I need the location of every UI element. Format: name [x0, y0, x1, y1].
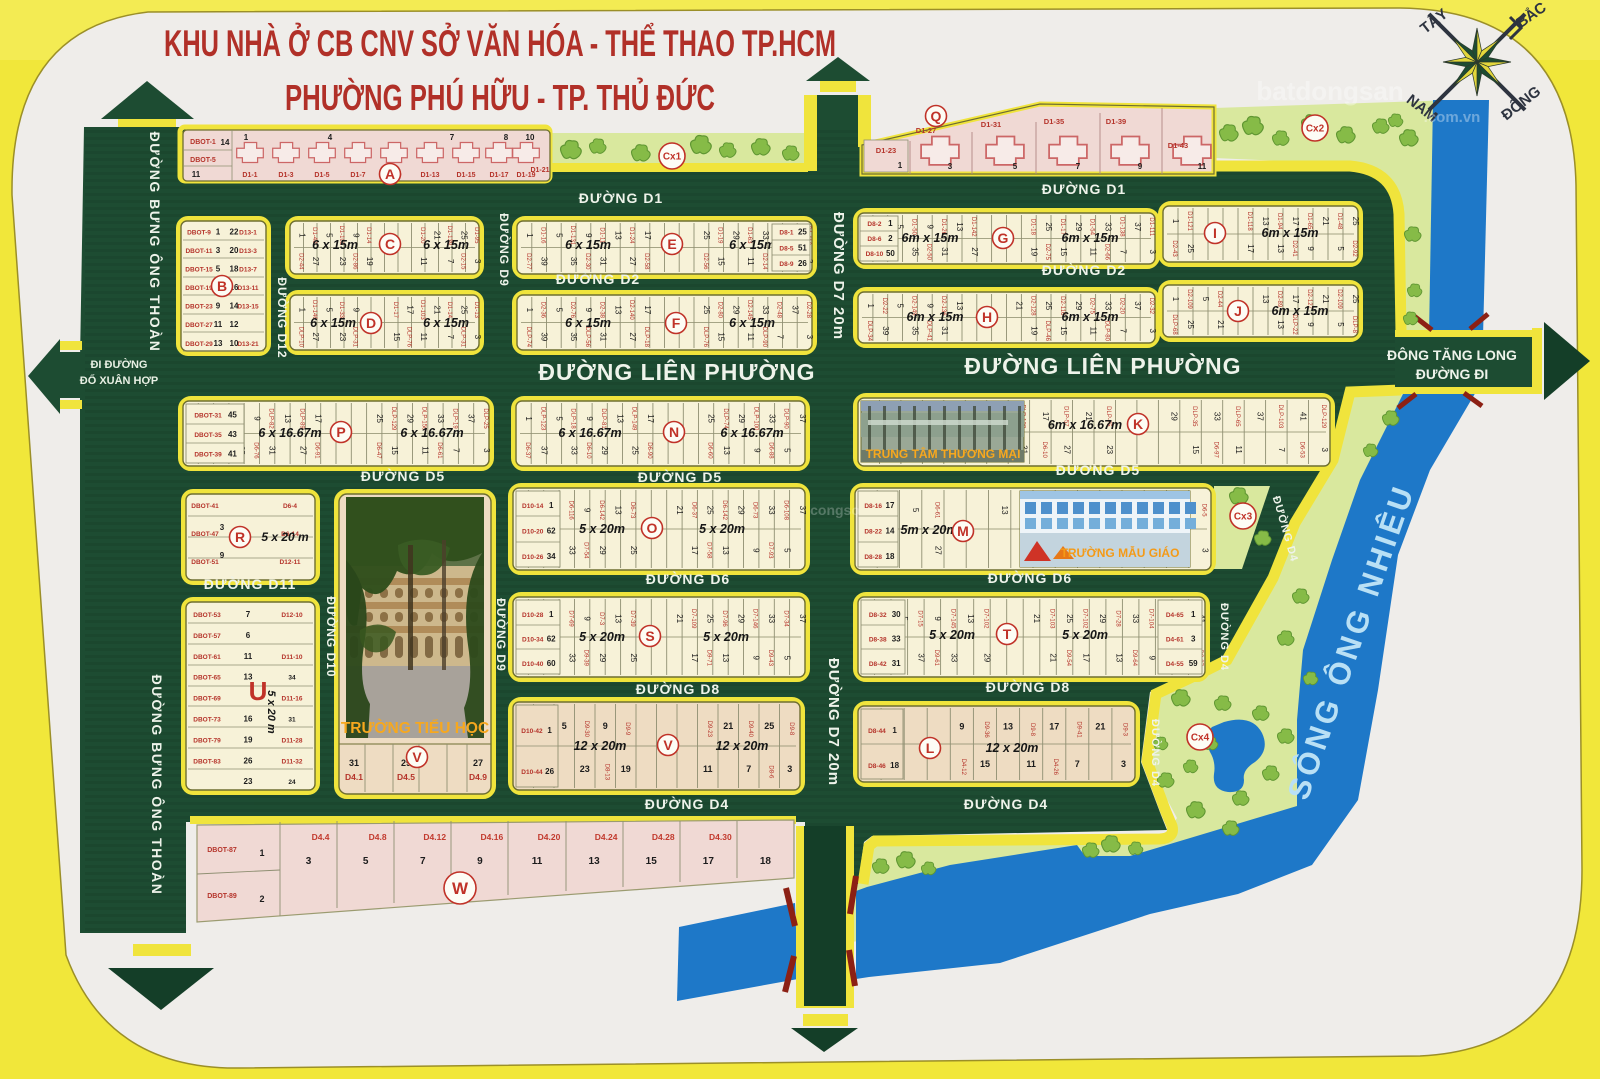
svg-text:D2-140: D2-140 — [628, 300, 634, 320]
svg-text:D8-2: D8-2 — [867, 221, 881, 228]
svg-text:62: 62 — [547, 527, 556, 536]
svg-text:ĐƯỜNG D4: ĐƯỜNG D4 — [1149, 719, 1162, 787]
svg-text:D4.8: D4.8 — [369, 832, 387, 842]
svg-text:D6-90: D6-90 — [646, 442, 652, 459]
svg-text:9: 9 — [220, 551, 225, 560]
svg-text:4: 4 — [328, 133, 333, 142]
svg-text:6 x 16.67m: 6 x 16.67m — [720, 426, 783, 440]
svg-text:D6-47: D6-47 — [375, 442, 381, 459]
svg-text:D11-10: D11-10 — [282, 654, 303, 661]
svg-text:35: 35 — [910, 247, 919, 256]
svg-text:D1-21: D1-21 — [530, 167, 549, 174]
svg-text:D1-111: D1-111 — [1148, 217, 1154, 236]
svg-text:2: 2 — [888, 234, 893, 243]
svg-text:5 x 20m: 5 x 20m — [699, 522, 745, 536]
svg-text:23: 23 — [244, 777, 253, 786]
svg-text:5: 5 — [783, 448, 792, 453]
svg-text:D9-8: D9-8 — [788, 722, 794, 736]
svg-text:31: 31 — [349, 758, 359, 768]
svg-text:3: 3 — [787, 764, 792, 774]
svg-text:D6-73: D6-73 — [752, 502, 758, 519]
svg-text:ĐƯỜNG ĐI: ĐƯỜNG ĐI — [1416, 365, 1489, 382]
svg-text:6m x 15m: 6m x 15m — [1062, 231, 1119, 245]
svg-text:D10-28: D10-28 — [522, 612, 544, 619]
svg-text:37: 37 — [1133, 301, 1142, 310]
svg-text:D10-44: D10-44 — [521, 769, 543, 776]
svg-text:TRUNG TÂM THƯƠNG MẠI: TRUNG TÂM THƯƠNG MẠI — [866, 446, 1021, 461]
svg-text:5: 5 — [554, 308, 563, 313]
svg-text:ĐƯỜNG D7 20m: ĐƯỜNG D7 20m — [825, 658, 843, 786]
svg-text:ĐƯỜNG D5: ĐƯỜNG D5 — [1056, 461, 1140, 478]
svg-text:U: U — [249, 676, 268, 706]
svg-text:21: 21 — [675, 614, 684, 623]
svg-text:6 x 16.67m: 6 x 16.67m — [400, 426, 463, 440]
svg-text:23: 23 — [1105, 445, 1114, 454]
svg-text:13: 13 — [966, 614, 975, 623]
svg-text:7: 7 — [446, 335, 455, 340]
svg-text:13: 13 — [613, 231, 622, 240]
svg-text:27: 27 — [298, 446, 307, 455]
svg-text:ĐƯỜNG D2: ĐƯỜNG D2 — [1042, 261, 1126, 278]
svg-text:15: 15 — [390, 446, 399, 455]
svg-text:1: 1 — [525, 308, 534, 313]
svg-text:D11-28: D11-28 — [282, 737, 303, 744]
svg-text:D4.24: D4.24 — [595, 832, 618, 842]
svg-text:D8-9: D8-9 — [779, 261, 793, 268]
svg-text:D6-37: D6-37 — [524, 442, 530, 459]
svg-text:D1-13: D1-13 — [420, 172, 439, 179]
svg-text:D13-15: D13-15 — [237, 304, 259, 311]
svg-text:29: 29 — [405, 414, 414, 423]
svg-text:27: 27 — [970, 247, 979, 256]
svg-text:14: 14 — [230, 302, 239, 311]
svg-text:14: 14 — [221, 138, 230, 147]
svg-text:29: 29 — [737, 414, 746, 423]
svg-text:D6-4: D6-4 — [283, 503, 297, 510]
svg-text:D13-21: D13-21 — [237, 341, 259, 348]
svg-text:26: 26 — [244, 756, 253, 765]
svg-text:D1-18: D1-18 — [1029, 219, 1035, 236]
svg-text:25: 25 — [459, 305, 468, 314]
svg-text:D1-16: D1-16 — [540, 227, 546, 244]
svg-text:DBOT-23: DBOT-23 — [185, 304, 213, 311]
svg-text:R: R — [235, 529, 245, 545]
svg-text:6 x 15m: 6 x 15m — [565, 238, 611, 252]
svg-text:37: 37 — [467, 414, 476, 423]
svg-text:TRƯỜNG MẪU GIÁO: TRƯỜNG MẪU GIÁO — [1061, 545, 1180, 560]
svg-text:DLP-8: DLP-8 — [1351, 316, 1357, 334]
svg-text:D8-5: D8-5 — [779, 245, 793, 252]
svg-text:D1-118: D1-118 — [1246, 212, 1252, 232]
svg-text:31: 31 — [892, 659, 901, 668]
svg-text:5 x 20m: 5 x 20m — [579, 522, 625, 536]
svg-text:11: 11 — [1089, 327, 1098, 336]
svg-text:9: 9 — [959, 722, 964, 732]
svg-text:DLP-129: DLP-129 — [1320, 405, 1326, 429]
svg-text:7: 7 — [776, 335, 785, 340]
svg-text:D2-32: D2-32 — [1148, 298, 1154, 315]
svg-text:D7-3: D7-3 — [598, 612, 604, 626]
svg-text:D9-23: D9-23 — [706, 721, 712, 738]
svg-text:ĐƯỜNG D9: ĐƯỜNG D9 — [497, 213, 512, 287]
svg-text:7: 7 — [1277, 447, 1286, 452]
svg-text:N: N — [669, 424, 679, 440]
svg-text:25: 25 — [1186, 320, 1195, 329]
svg-text:27: 27 — [628, 257, 637, 266]
svg-text:21: 21 — [1321, 295, 1330, 304]
svg-text:37: 37 — [790, 305, 799, 314]
svg-text:3: 3 — [306, 856, 312, 867]
svg-text:D8-13: D8-13 — [603, 764, 609, 781]
svg-text:25: 25 — [1351, 295, 1360, 304]
svg-text:13: 13 — [613, 614, 622, 623]
svg-text:13: 13 — [722, 446, 731, 455]
svg-text:1: 1 — [524, 416, 533, 421]
svg-text:D2-41: D2-41 — [1291, 240, 1297, 257]
svg-text:D8-6: D8-6 — [767, 765, 773, 779]
svg-text:D9-41: D9-41 — [1075, 721, 1081, 738]
svg-text:23: 23 — [338, 257, 347, 266]
svg-text:9: 9 — [351, 308, 360, 313]
svg-text:6 x 16.67m: 6 x 16.67m — [558, 426, 621, 440]
svg-text:ĐI ĐƯỜNG: ĐI ĐƯỜNG — [90, 358, 147, 371]
svg-text:D9-43: D9-43 — [767, 650, 773, 667]
svg-text:D2-22: D2-22 — [881, 298, 887, 315]
svg-text:6 x 15m: 6 x 15m — [423, 316, 469, 330]
svg-text:25: 25 — [629, 653, 638, 662]
svg-text:M: M — [957, 523, 969, 539]
svg-text:Cx2: Cx2 — [1306, 124, 1325, 135]
svg-text:13: 13 — [721, 653, 730, 662]
svg-text:6m x 15m: 6m x 15m — [907, 310, 964, 324]
svg-text:1: 1 — [297, 308, 306, 313]
svg-text:D10-34: D10-34 — [522, 636, 544, 643]
svg-text:37: 37 — [798, 414, 807, 423]
svg-text:20: 20 — [230, 246, 239, 255]
svg-text:9: 9 — [216, 302, 221, 311]
svg-text:17: 17 — [405, 305, 414, 314]
svg-text:D4.12: D4.12 — [423, 832, 446, 842]
svg-text:D4-65: D4-65 — [1166, 612, 1184, 619]
svg-text:D9-64: D9-64 — [1131, 650, 1137, 667]
svg-text:D13-3: D13-3 — [239, 248, 257, 255]
svg-text:D1-43: D1-43 — [1168, 141, 1188, 150]
svg-text:DBOT-69: DBOT-69 — [193, 696, 221, 703]
svg-text:33: 33 — [1213, 412, 1222, 421]
svg-text:D1-17: D1-17 — [489, 172, 508, 179]
svg-text:D9-36: D9-36 — [983, 721, 989, 738]
svg-text:D2-86: D2-86 — [351, 253, 357, 270]
svg-text:11: 11 — [244, 652, 253, 661]
svg-text:D6-10: D6-10 — [585, 442, 591, 459]
svg-text:33: 33 — [567, 546, 576, 555]
svg-text:D1-7: D1-7 — [350, 172, 365, 179]
svg-text:D1-17: D1-17 — [392, 302, 398, 319]
svg-text:18: 18 — [886, 552, 895, 561]
svg-text:D9-61: D9-61 — [933, 650, 939, 667]
svg-text:D4-55: D4-55 — [1166, 661, 1184, 668]
svg-text:DBOT-57: DBOT-57 — [193, 633, 221, 640]
svg-text:27: 27 — [1062, 445, 1071, 454]
svg-text:1: 1 — [892, 726, 897, 735]
svg-text:1: 1 — [1171, 219, 1180, 224]
svg-text:7: 7 — [451, 448, 460, 453]
svg-text:DLP-123: DLP-123 — [539, 407, 545, 431]
svg-text:DBOT-19: DBOT-19 — [185, 285, 213, 292]
svg-text:13: 13 — [1261, 295, 1270, 304]
svg-text:5: 5 — [324, 308, 333, 313]
svg-text:21: 21 — [1321, 217, 1330, 226]
svg-text:D2-92: D2-92 — [1351, 240, 1357, 257]
svg-text:ĐƯỜNG D7 20m: ĐƯỜNG D7 20m — [830, 212, 848, 340]
svg-text:5: 5 — [911, 508, 920, 513]
svg-text:6m x 15m: 6m x 15m — [902, 231, 959, 245]
svg-text:26: 26 — [545, 767, 554, 776]
svg-text:DBOT-65: DBOT-65 — [193, 675, 221, 682]
svg-text:29: 29 — [598, 546, 607, 555]
svg-text:batdongsan: batdongsan — [1256, 76, 1403, 106]
svg-text:ĐƯỜNG D1: ĐƯỜNG D1 — [1042, 180, 1126, 197]
svg-text:29: 29 — [731, 305, 740, 314]
svg-text:13: 13 — [1115, 653, 1124, 662]
svg-text:31: 31 — [940, 326, 949, 335]
svg-text:9: 9 — [583, 508, 592, 513]
svg-text:ĐƯỜNG D2: ĐƯỜNG D2 — [556, 270, 640, 287]
svg-text:DLP-129: DLP-129 — [390, 407, 396, 431]
svg-text:Cx4: Cx4 — [1191, 733, 1210, 744]
svg-text:D8-38: D8-38 — [869, 636, 887, 643]
svg-text:11: 11 — [746, 333, 755, 342]
svg-text:D8-10: D8-10 — [866, 251, 884, 258]
svg-text:D2-77: D2-77 — [525, 253, 531, 270]
svg-text:D7-109: D7-109 — [690, 609, 696, 629]
svg-text:D2-44: D2-44 — [297, 253, 303, 270]
svg-text:41: 41 — [1298, 412, 1307, 421]
svg-text:29: 29 — [598, 653, 607, 662]
svg-text:D7-103: D7-103 — [1049, 609, 1055, 629]
svg-text:D4.1: D4.1 — [345, 772, 363, 782]
svg-text:21: 21 — [675, 506, 684, 515]
svg-text:D8-32: D8-32 — [869, 612, 887, 619]
svg-text:11: 11 — [1026, 759, 1036, 769]
svg-text:D4.9: D4.9 — [469, 772, 487, 782]
svg-text:3: 3 — [1148, 329, 1157, 334]
svg-text:35: 35 — [569, 332, 578, 341]
svg-text:9: 9 — [603, 721, 608, 731]
svg-text:14: 14 — [886, 527, 895, 536]
svg-text:11: 11 — [1198, 162, 1207, 171]
svg-text:9: 9 — [1138, 162, 1143, 171]
svg-text:D1-23: D1-23 — [876, 146, 896, 155]
svg-text:D2-109: D2-109 — [1186, 289, 1192, 309]
svg-text:D11-32: D11-32 — [282, 758, 303, 765]
svg-text:29: 29 — [736, 614, 745, 623]
svg-text:7: 7 — [1118, 329, 1127, 334]
svg-text:D7-15: D7-15 — [916, 610, 922, 627]
svg-text:39: 39 — [881, 326, 890, 335]
svg-text:PHƯỜNG PHÚ HỮU - TP. THỦ ĐỨC: PHƯỜNG PHÚ HỮU - TP. THỦ ĐỨC — [285, 76, 715, 118]
svg-text:D8-1: D8-1 — [779, 230, 793, 237]
svg-text:D13-7: D13-7 — [239, 267, 257, 274]
svg-text:7: 7 — [1075, 759, 1080, 769]
svg-text:P: P — [336, 424, 345, 440]
svg-text:9: 9 — [925, 225, 934, 230]
svg-text:D4.20: D4.20 — [538, 832, 561, 842]
svg-text:S: S — [645, 628, 654, 644]
svg-text:17: 17 — [643, 305, 652, 314]
svg-text:D1-27: D1-27 — [916, 126, 936, 135]
svg-text:1: 1 — [1191, 610, 1196, 619]
svg-text:D6-53: D6-53 — [1298, 442, 1304, 459]
svg-text:DLP-46: DLP-46 — [1044, 321, 1050, 342]
svg-text:D10-40: D10-40 — [522, 661, 544, 668]
svg-text:33: 33 — [570, 446, 579, 455]
svg-text:DLP-74: DLP-74 — [525, 327, 531, 348]
svg-text:D9-3: D9-3 — [1121, 723, 1127, 737]
svg-text:D7-145: D7-145 — [949, 609, 955, 629]
svg-text:1: 1 — [898, 161, 903, 170]
svg-text:35: 35 — [569, 257, 578, 266]
svg-text:ĐƯỜNG BƯNG ÔNG THOÀN: ĐƯỜNG BƯNG ÔNG THOÀN — [149, 675, 166, 896]
svg-text:3: 3 — [1121, 759, 1126, 769]
svg-text:33: 33 — [767, 506, 776, 515]
svg-text:13: 13 — [1276, 320, 1285, 329]
svg-text:DBOT-41: DBOT-41 — [191, 503, 219, 510]
svg-text:9: 9 — [933, 616, 942, 621]
svg-text:D4.5: D4.5 — [397, 772, 415, 782]
svg-text:DLP-35: DLP-35 — [1191, 406, 1197, 427]
svg-text:11: 11 — [214, 320, 223, 329]
svg-text:D8-46: D8-46 — [868, 763, 886, 770]
svg-text:DBOT-9: DBOT-9 — [187, 229, 211, 236]
svg-text:25: 25 — [764, 721, 774, 731]
svg-text:ĐƯỜNG D12: ĐƯỜNG D12 — [275, 277, 290, 358]
svg-text:30: 30 — [892, 610, 901, 619]
svg-text:W: W — [452, 879, 469, 898]
svg-text:F: F — [672, 315, 681, 331]
svg-text:17: 17 — [643, 231, 652, 240]
svg-text:3: 3 — [473, 259, 482, 264]
svg-text:9: 9 — [752, 656, 761, 661]
svg-text:13: 13 — [589, 856, 601, 867]
svg-text:6m x 16.67m: 6m x 16.67m — [1048, 418, 1122, 432]
svg-text:37: 37 — [798, 614, 807, 623]
svg-text:DBOT-51: DBOT-51 — [191, 559, 219, 566]
svg-text:DBOT-39: DBOT-39 — [194, 452, 222, 459]
svg-text:3: 3 — [1320, 447, 1329, 452]
svg-text:17: 17 — [703, 856, 715, 867]
svg-text:17: 17 — [646, 414, 655, 423]
svg-text:D2-36: D2-36 — [540, 302, 546, 319]
svg-text:12 x 20m: 12 x 20m — [986, 741, 1039, 755]
svg-text:5: 5 — [1336, 322, 1345, 327]
svg-text:31: 31 — [940, 247, 949, 256]
svg-text:25: 25 — [1351, 217, 1360, 226]
svg-text:1: 1 — [547, 726, 552, 735]
svg-text:7: 7 — [450, 133, 455, 142]
svg-text:D8-22: D8-22 — [864, 529, 882, 536]
svg-text:6 x 15m: 6 x 15m — [312, 238, 358, 252]
svg-text:DLP-10: DLP-10 — [297, 327, 303, 348]
svg-text:D6-73: D6-73 — [629, 502, 635, 519]
svg-text:29: 29 — [1098, 614, 1107, 623]
svg-text:24: 24 — [288, 779, 296, 786]
svg-text:D2-20: D2-20 — [1118, 298, 1124, 315]
svg-text:D9-30: D9-30 — [583, 721, 589, 738]
svg-text:D6-10: D6-10 — [1041, 442, 1047, 459]
svg-text:3: 3 — [220, 523, 225, 532]
svg-text:D10-14: D10-14 — [522, 503, 544, 510]
svg-text:D2-56: D2-56 — [702, 253, 708, 270]
svg-text:6: 6 — [246, 631, 251, 640]
svg-text:D6-37: D6-37 — [690, 502, 696, 519]
svg-text:17: 17 — [1291, 295, 1300, 304]
svg-text:V: V — [663, 737, 673, 753]
svg-text:1: 1 — [525, 233, 534, 238]
svg-text:D4.4: D4.4 — [312, 832, 330, 842]
svg-text:17: 17 — [314, 414, 323, 423]
svg-text:congso: congso — [810, 502, 860, 518]
svg-text:15: 15 — [392, 332, 401, 341]
svg-text:DBOT-35: DBOT-35 — [194, 432, 222, 439]
svg-text:D4-12: D4-12 — [960, 759, 966, 776]
svg-text:21: 21 — [432, 305, 441, 314]
svg-text:19: 19 — [244, 735, 253, 744]
svg-text:DLP-149: DLP-149 — [631, 407, 637, 431]
svg-text:DLP-103: DLP-103 — [1277, 405, 1283, 429]
svg-text:D7-58: D7-58 — [706, 542, 712, 559]
svg-text:11: 11 — [746, 257, 755, 266]
svg-text:1: 1 — [549, 610, 554, 619]
svg-text:I: I — [1213, 225, 1217, 241]
svg-text:21: 21 — [1049, 653, 1058, 662]
svg-text:39: 39 — [540, 332, 549, 341]
svg-text:37: 37 — [1255, 412, 1264, 421]
svg-text:51: 51 — [798, 243, 807, 252]
svg-text:6 x 15m: 6 x 15m — [729, 316, 775, 330]
svg-text:ĐƯỜNG D4: ĐƯỜNG D4 — [1218, 603, 1231, 671]
svg-text:6 x 15m: 6 x 15m — [729, 238, 775, 252]
svg-text:9: 9 — [252, 416, 261, 421]
svg-text:11: 11 — [419, 333, 428, 342]
svg-text:D4.28: D4.28 — [652, 832, 675, 842]
svg-text:17: 17 — [690, 546, 699, 555]
svg-text:KHU NHÀ Ở CB CNV SỞ VĂN HÓA -: KHU NHÀ Ở CB CNV SỞ VĂN HÓA - THỂ THAO T… — [164, 22, 836, 64]
svg-text:19: 19 — [621, 764, 631, 774]
svg-text:7: 7 — [446, 259, 455, 264]
svg-text:27: 27 — [311, 257, 320, 266]
svg-text:D2-75: D2-75 — [1044, 244, 1050, 261]
svg-text:DBOT-83: DBOT-83 — [193, 758, 221, 765]
svg-text:D8-6: D8-6 — [867, 236, 881, 243]
svg-text:13: 13 — [721, 546, 730, 555]
svg-text:9: 9 — [477, 856, 483, 867]
svg-text:D10-42: D10-42 — [521, 728, 543, 735]
svg-text:25: 25 — [1186, 244, 1195, 253]
svg-text:27: 27 — [311, 332, 320, 341]
svg-text:11: 11 — [192, 170, 201, 179]
svg-text:9: 9 — [925, 304, 934, 309]
svg-text:31: 31 — [288, 716, 296, 723]
svg-text:ĐƯỜNG D6: ĐƯỜNG D6 — [646, 570, 730, 587]
svg-text:33: 33 — [761, 305, 770, 314]
svg-text:62: 62 — [547, 634, 556, 643]
svg-text:15: 15 — [646, 856, 658, 867]
svg-text:DLP-34: DLP-34 — [866, 321, 872, 342]
svg-text:1: 1 — [549, 501, 554, 510]
svg-text:1: 1 — [888, 219, 893, 228]
svg-text:D1-39: D1-39 — [1106, 117, 1126, 126]
